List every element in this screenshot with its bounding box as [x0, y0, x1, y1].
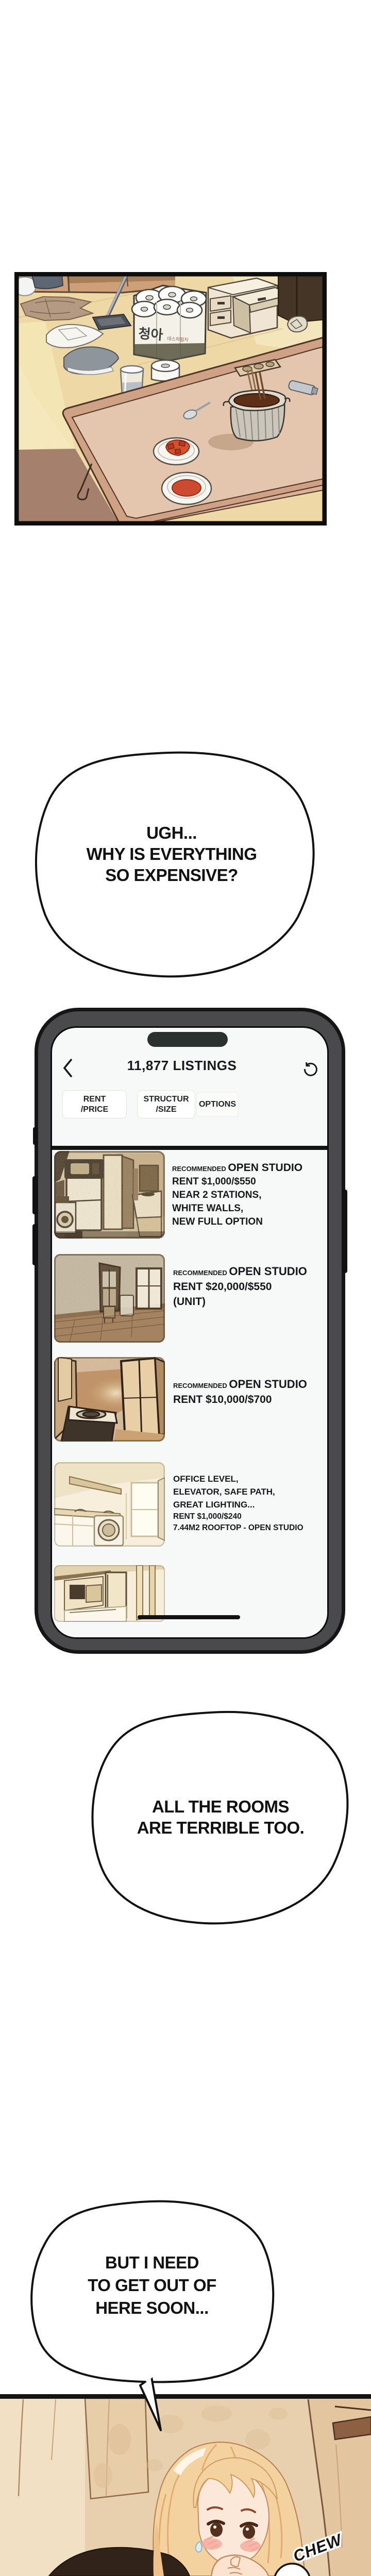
svg-text:청아: 청아: [138, 326, 164, 343]
